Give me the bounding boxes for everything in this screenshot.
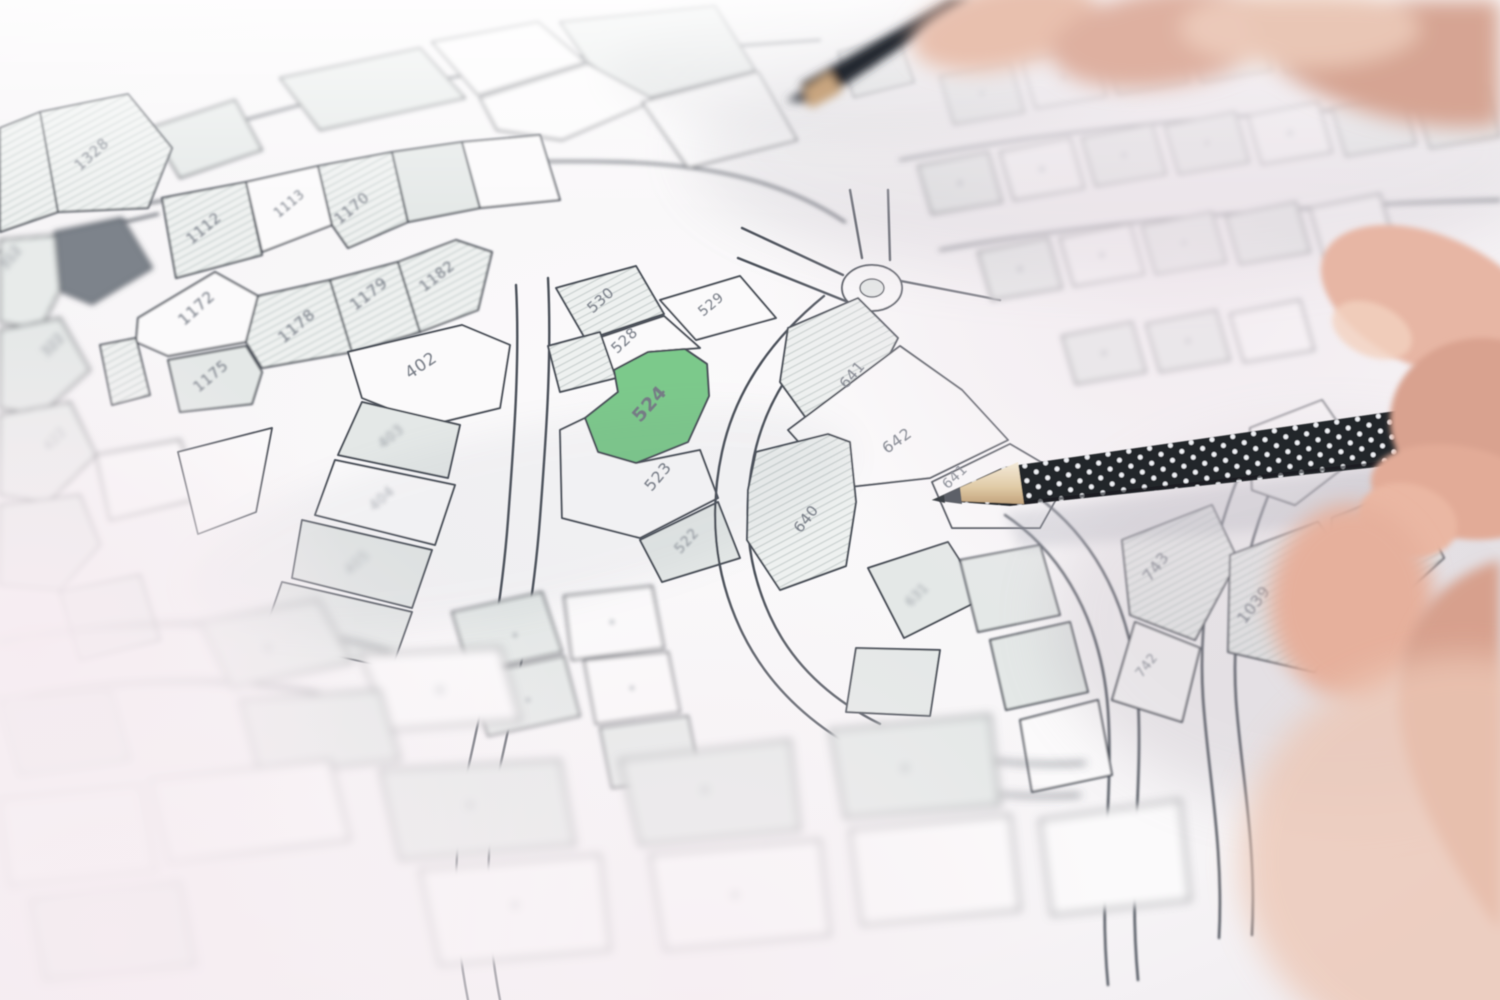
- cadastral-map-photo: 99 1328 312 322 422 1112 1113 1170 1172 …: [0, 0, 1500, 1000]
- photo-cadastral-map: 99 1328 312 322 422 1112 1113 1170 1172 …: [0, 0, 1500, 1000]
